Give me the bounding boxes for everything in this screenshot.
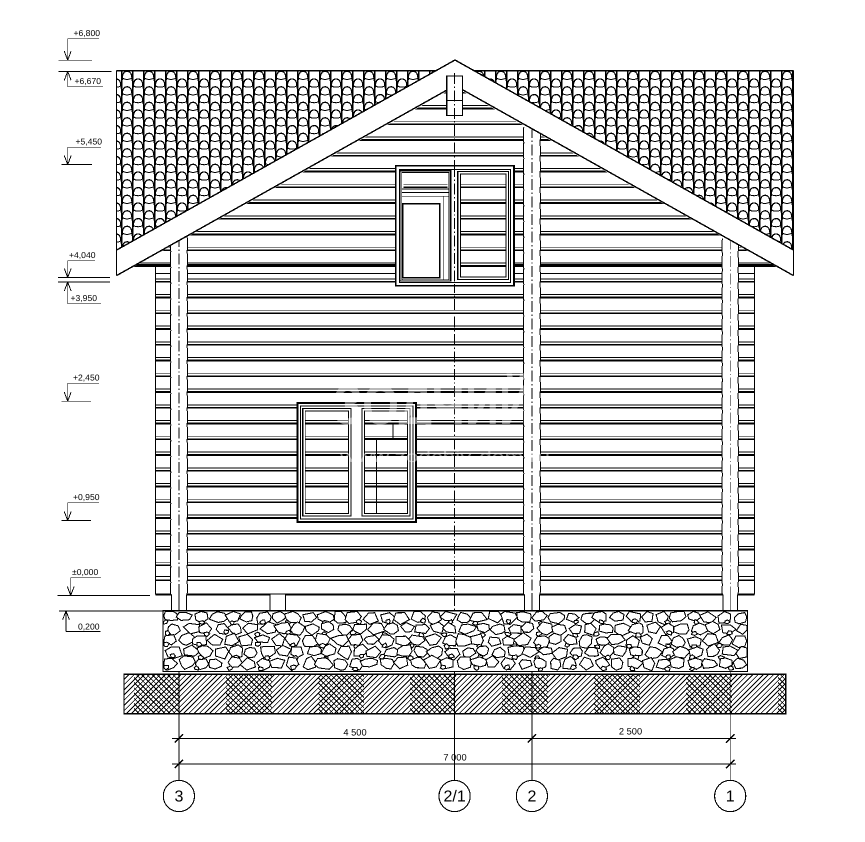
svg-text:www.zodchiy-dom.ru: www.zodchiy-dom.ru <box>339 449 550 466</box>
svg-text:+0,950: +0,950 <box>73 492 100 502</box>
svg-text:2: 2 <box>527 789 536 806</box>
svg-text:3: 3 <box>174 789 183 806</box>
svg-text:2 500: 2 500 <box>619 727 642 737</box>
svg-text:4 500: 4 500 <box>343 728 366 738</box>
svg-text:2/1: 2/1 <box>443 789 465 806</box>
svg-text:ЗОДЧИЙ: ЗОДЧИЙ <box>333 373 533 436</box>
svg-text:+5,450: +5,450 <box>76 137 103 147</box>
svg-text:0,200: 0,200 <box>78 622 100 632</box>
svg-text:+6,800: +6,800 <box>74 28 101 38</box>
svg-text:+4,040: +4,040 <box>69 250 96 260</box>
svg-text:7 000: 7 000 <box>443 753 466 763</box>
svg-text:+6,670: +6,670 <box>75 76 102 86</box>
svg-text:+2,450: +2,450 <box>73 373 100 383</box>
svg-text:±0,000: ±0,000 <box>72 567 98 577</box>
svg-text:+3,950: +3,950 <box>71 293 98 303</box>
svg-text:1: 1 <box>726 789 735 806</box>
